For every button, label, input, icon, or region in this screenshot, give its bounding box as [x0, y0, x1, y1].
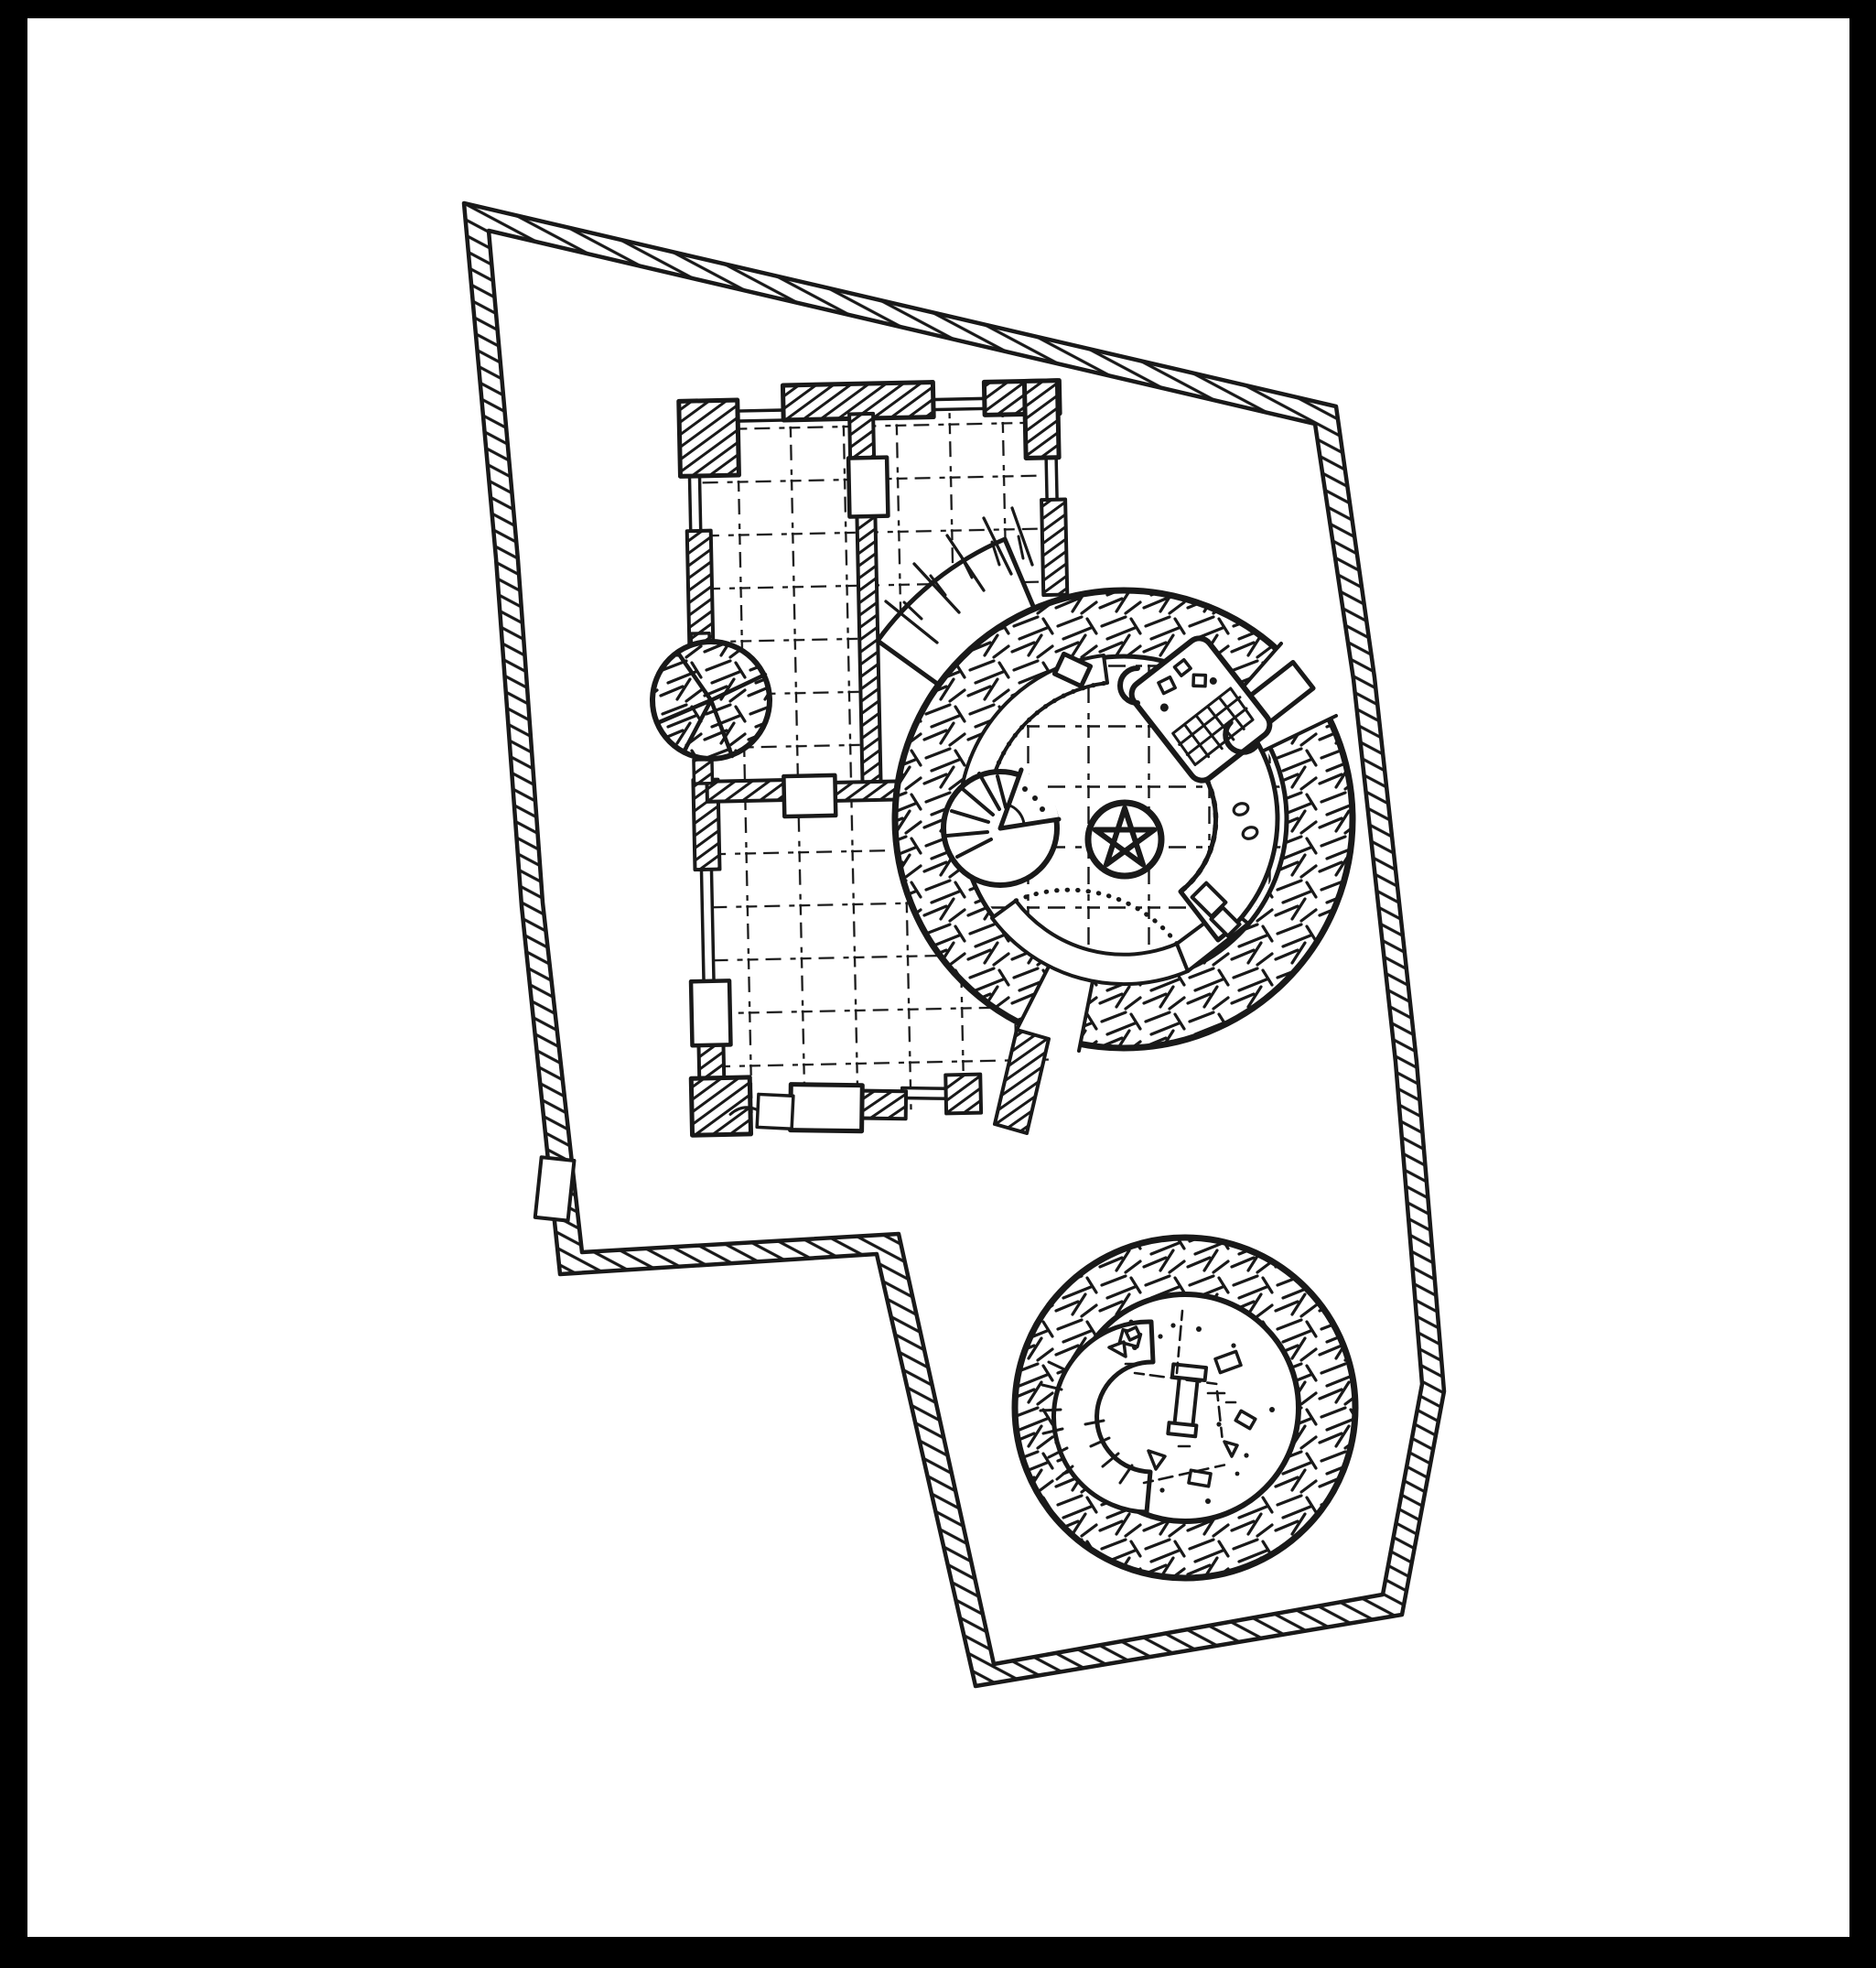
wall-segment [701, 868, 714, 985]
turret-stub [694, 760, 713, 784]
pillar-southwest [691, 1077, 750, 1135]
wall-segment [930, 398, 988, 409]
wall-segment [902, 1088, 950, 1099]
pillar-south-corner [945, 1075, 981, 1114]
door-south-main [791, 1085, 863, 1131]
map-canvas [0, 0, 1876, 1968]
door-interior-west [783, 775, 836, 816]
corner-turret [652, 642, 770, 759]
ruined-tower [1015, 1238, 1355, 1578]
wall-west-hatched [687, 531, 714, 647]
door-south-post [757, 1094, 793, 1129]
door-west [691, 980, 730, 1045]
pillar-northeast-b [1024, 381, 1059, 459]
wall-interior-horizontal [706, 780, 785, 802]
pentagram-seal [1088, 803, 1161, 876]
keep-floor-plan [0, 0, 1876, 1968]
game-piece [1193, 675, 1205, 686]
west-gate [535, 1157, 575, 1220]
wall-segment [1046, 454, 1057, 505]
tower-spiral-stair [943, 770, 1059, 885]
wall-segment [689, 474, 700, 535]
wall-east-hatched [1041, 500, 1067, 596]
wall-south-hatched [858, 1091, 906, 1119]
wall-segment [736, 410, 787, 421]
wall-interior-vertical [857, 514, 880, 785]
door-interior-north [848, 458, 888, 517]
pillar-northwest [679, 400, 739, 476]
